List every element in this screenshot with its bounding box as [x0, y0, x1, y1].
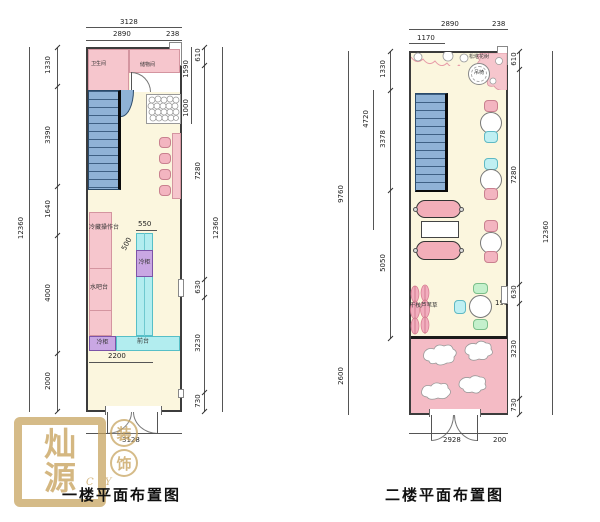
pebble-circles — [147, 95, 180, 123]
stool — [484, 251, 498, 263]
chair — [159, 169, 171, 180]
dim-tick — [55, 409, 61, 415]
dim-line — [222, 47, 223, 412]
sofa-table — [421, 221, 459, 238]
dim-label: 4000 — [44, 276, 52, 310]
dim-label: 1330 — [44, 48, 52, 82]
dim-label: 610 — [194, 38, 202, 72]
sofa-foot — [459, 207, 464, 212]
sofa-foot — [413, 207, 418, 212]
floor1-title: 一楼平面布置图 — [62, 484, 181, 505]
dim-line — [390, 51, 391, 339]
floor2-title: 二楼平面布置图 — [385, 484, 504, 505]
stool — [484, 100, 498, 112]
stool — [473, 283, 488, 294]
water-bar-label: 水吧台 — [90, 285, 108, 292]
dim-label: 4720 — [362, 102, 370, 136]
dim-label: 12360 — [17, 211, 25, 245]
badge-character: 装 — [116, 423, 131, 444]
floorplan-drawing: 卫生间 储物间 冷藏操作 — [0, 0, 600, 522]
watermark-badge: 饰 — [110, 449, 138, 477]
freezer-bottom: 冷柜 — [89, 336, 116, 351]
dim-label: 2200 — [108, 352, 126, 360]
dim-label: 550 — [138, 220, 151, 228]
dim-label: 238 — [492, 20, 505, 28]
dim-label: 7280 — [510, 158, 518, 192]
dim-line — [552, 51, 553, 415]
dim-label: 630 — [194, 270, 202, 304]
dim-label: 2600 — [337, 359, 345, 393]
dim-label: 12360 — [212, 211, 220, 245]
sofa — [416, 241, 461, 260]
storage-room-label: 储物间 — [140, 63, 155, 69]
dim-line — [348, 51, 349, 415]
floor1-stairs — [88, 90, 121, 190]
front-desk-label: 前台 — [137, 339, 149, 346]
dim-label: 1590 — [182, 52, 190, 86]
dim-label: 1330 — [379, 52, 387, 86]
stool — [484, 188, 498, 200]
dim-label: 238 — [166, 30, 179, 38]
counter-divider — [89, 268, 112, 269]
window — [501, 286, 508, 304]
dim-label: 730 — [510, 388, 518, 422]
dim-line-2200 — [89, 362, 153, 363]
door-leaf — [477, 415, 478, 441]
dim-label: 3378 — [379, 122, 387, 156]
dim-label: 3230 — [194, 326, 202, 360]
chair — [159, 153, 171, 164]
dim-label: 5050 — [379, 246, 387, 280]
freezer-top: 冷柜 — [136, 250, 153, 277]
branch-trees — [409, 284, 433, 336]
hanging-chair-label: 吊椅 — [474, 71, 484, 77]
badge-character: 饰 — [116, 453, 131, 474]
bathroom — [88, 49, 129, 93]
dim-label: 610 — [510, 42, 518, 76]
sofa — [416, 200, 461, 218]
cold-prep-label: 冷藏操作台 — [89, 225, 119, 232]
dim-label: 7280 — [194, 154, 202, 188]
dim-label: 2928 — [443, 436, 461, 444]
bench — [172, 133, 181, 199]
dim-line — [409, 433, 508, 434]
dim-line — [409, 29, 508, 30]
sofa-foot — [413, 248, 418, 253]
dim-label: 1000 — [182, 91, 190, 125]
dim-line — [204, 47, 205, 412]
counter-centerline — [144, 233, 145, 336]
flower-tree-label: 松塔花树 — [469, 55, 489, 61]
dim-label: 2000 — [44, 364, 52, 398]
plant-display — [146, 94, 181, 124]
dim-line — [373, 90, 374, 230]
dim-label: 3390 — [44, 118, 52, 152]
chair — [159, 137, 171, 148]
dry-branch-label: 干枝芦苇草 — [410, 303, 438, 309]
cloud-decor — [411, 339, 507, 413]
chair — [159, 185, 171, 196]
hanging-chair: 吊椅 — [468, 63, 490, 85]
dim-line-550 — [136, 230, 157, 231]
dim-line — [409, 43, 445, 44]
window — [178, 279, 184, 297]
storage-door-leaf — [131, 72, 132, 92]
stool — [484, 131, 498, 143]
dim-label: 730 — [194, 384, 202, 418]
dim-tick — [202, 409, 208, 415]
dim-label: 2890 — [441, 20, 459, 28]
dim-label: 3230 — [510, 332, 518, 366]
freezer-bottom-label: 冷柜 — [96, 340, 108, 347]
dim-label: 12360 — [542, 215, 550, 249]
dim-line — [86, 27, 182, 28]
window — [178, 389, 184, 398]
dim-line — [191, 47, 192, 124]
watermark-badge: 装 — [110, 419, 138, 447]
dim-line — [86, 40, 182, 41]
counter-divider — [89, 310, 112, 311]
dim-tick — [388, 336, 394, 342]
sofa-foot — [459, 248, 464, 253]
dim-label: 3128 — [120, 18, 138, 26]
stool — [454, 300, 466, 314]
dim-label: 9760 — [337, 177, 345, 211]
dim-line — [519, 51, 520, 415]
stool — [484, 220, 498, 232]
dim-label: 630 — [510, 275, 518, 309]
floor2-stairs — [415, 93, 448, 192]
bathroom-label: 卫生间 — [91, 62, 106, 68]
dim-label: 1170 — [417, 34, 435, 42]
seal-character: 灿 — [44, 428, 76, 462]
freezer-top-label: 冷柜 — [138, 260, 150, 267]
dim-line — [29, 47, 30, 412]
dim-label: 1640 — [44, 192, 52, 226]
dim-label: 2890 — [113, 30, 131, 38]
round-table — [469, 295, 492, 318]
storage-room — [129, 49, 180, 73]
stool — [473, 319, 488, 330]
dim-line — [57, 47, 58, 412]
dim-label: 200 — [493, 436, 506, 444]
